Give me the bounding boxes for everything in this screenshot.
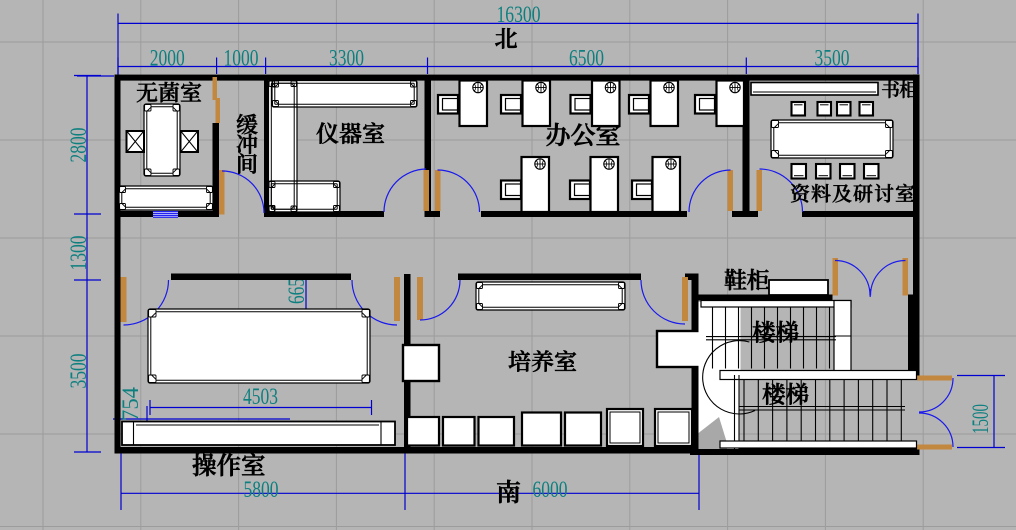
svg-text:6500: 6500 [569, 46, 604, 71]
svg-text:665: 665 [284, 278, 309, 304]
svg-text:3300: 3300 [329, 46, 364, 71]
svg-text:16300: 16300 [497, 2, 541, 27]
svg-text:2800: 2800 [66, 128, 91, 163]
svg-text:3500: 3500 [815, 46, 850, 71]
svg-text:5800: 5800 [244, 477, 279, 502]
svg-text:3500: 3500 [66, 354, 91, 389]
svg-text:2000: 2000 [150, 46, 185, 71]
svg-text:4503: 4503 [243, 384, 278, 409]
svg-text:1000: 1000 [224, 46, 259, 71]
svg-text:1300: 1300 [66, 236, 91, 271]
svg-text:754: 754 [118, 387, 143, 421]
svg-text:1500: 1500 [968, 404, 993, 434]
svg-text:6000: 6000 [533, 477, 568, 502]
